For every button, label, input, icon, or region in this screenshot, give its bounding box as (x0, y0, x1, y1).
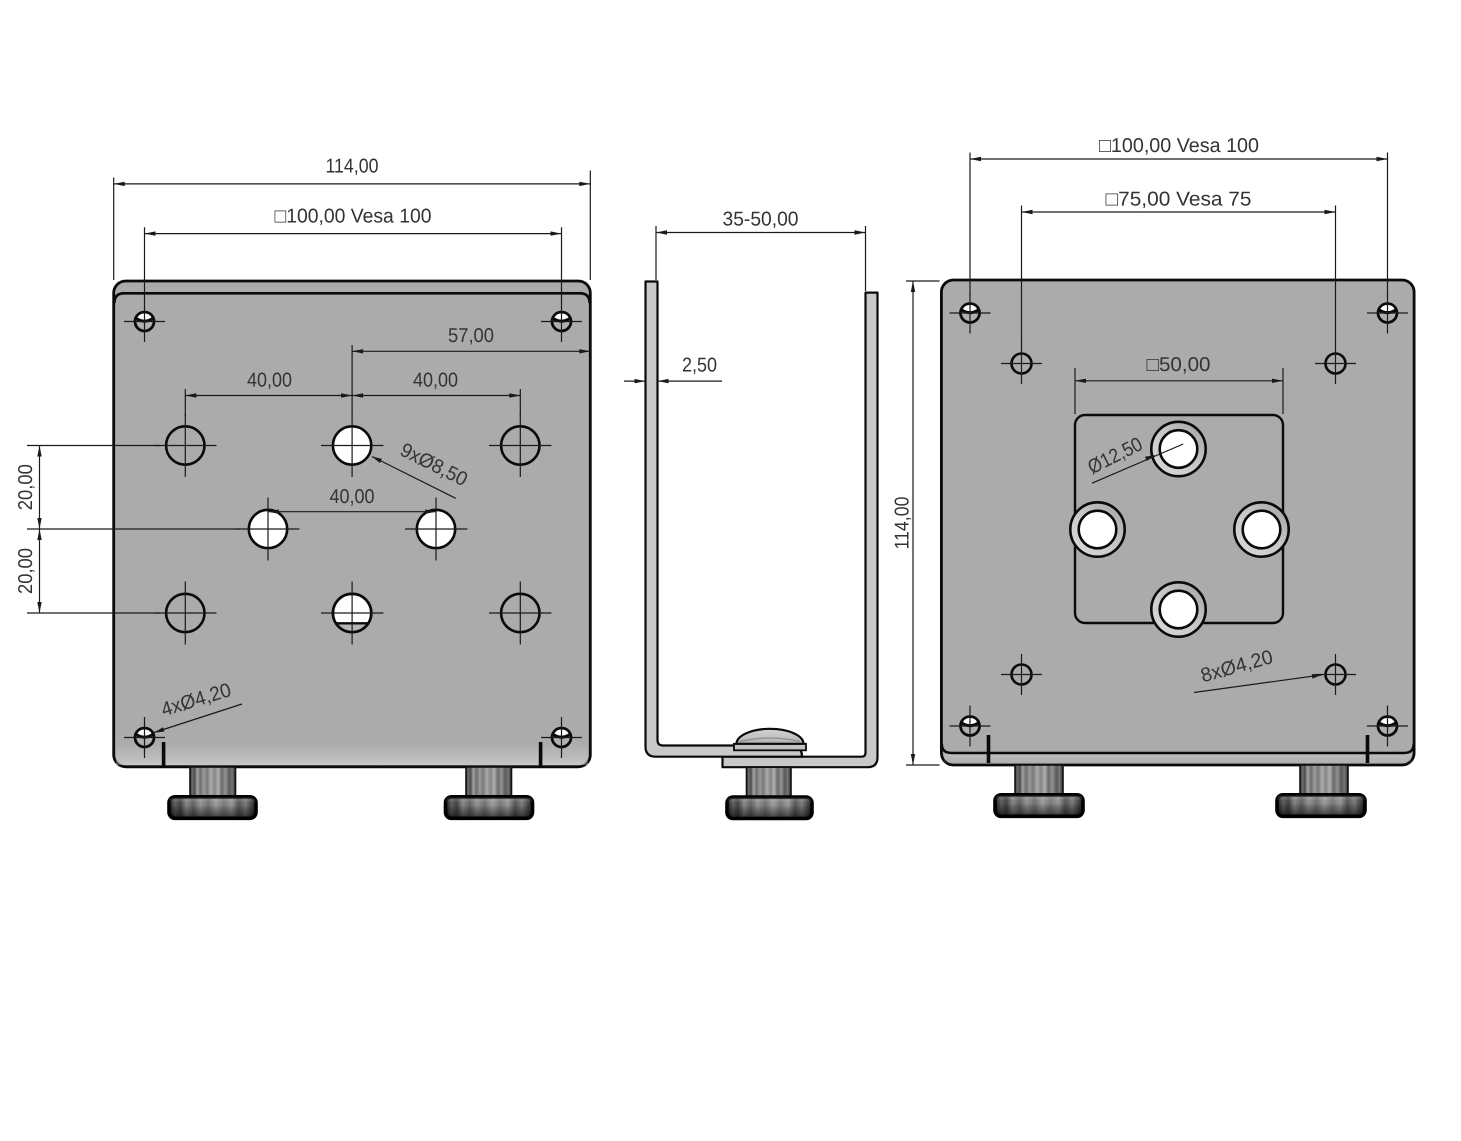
svg-text:40,00: 40,00 (413, 369, 458, 391)
svg-text:40,00: 40,00 (247, 369, 292, 391)
svg-text:114,00: 114,00 (892, 497, 914, 550)
svg-text:40,00: 40,00 (330, 486, 375, 508)
svg-text:35-50,00: 35-50,00 (723, 208, 799, 230)
svg-text:20,00: 20,00 (15, 548, 37, 594)
svg-text:□100,00 Vesa 100: □100,00 Vesa 100 (275, 206, 432, 228)
svg-text:114,00: 114,00 (326, 156, 379, 178)
svg-text:□50,00: □50,00 (1147, 354, 1211, 376)
svg-text:□100,00 Vesa 100: □100,00 Vesa 100 (1099, 135, 1259, 157)
svg-text:20,00: 20,00 (15, 464, 37, 510)
svg-text:2,50: 2,50 (682, 354, 717, 376)
svg-text:□75,00 Vesa 75: □75,00 Vesa 75 (1106, 188, 1252, 210)
svg-text:57,00: 57,00 (448, 325, 494, 347)
